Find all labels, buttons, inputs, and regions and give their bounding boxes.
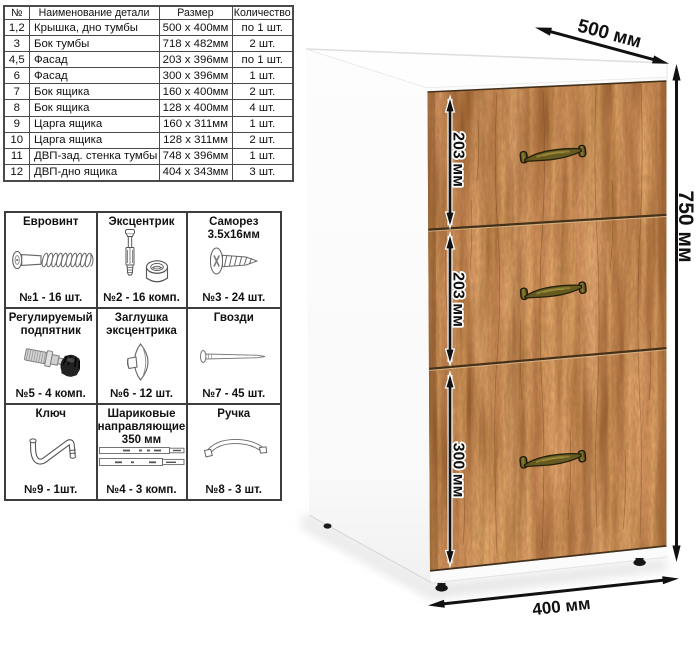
svg-text:750 мм: 750 мм (674, 191, 697, 263)
svg-text:203 мм: 203 мм (449, 272, 466, 327)
svg-text:400 мм: 400 мм (531, 594, 591, 619)
svg-text:203 мм: 203 мм (449, 132, 466, 187)
svg-text:300 мм: 300 мм (449, 443, 466, 498)
